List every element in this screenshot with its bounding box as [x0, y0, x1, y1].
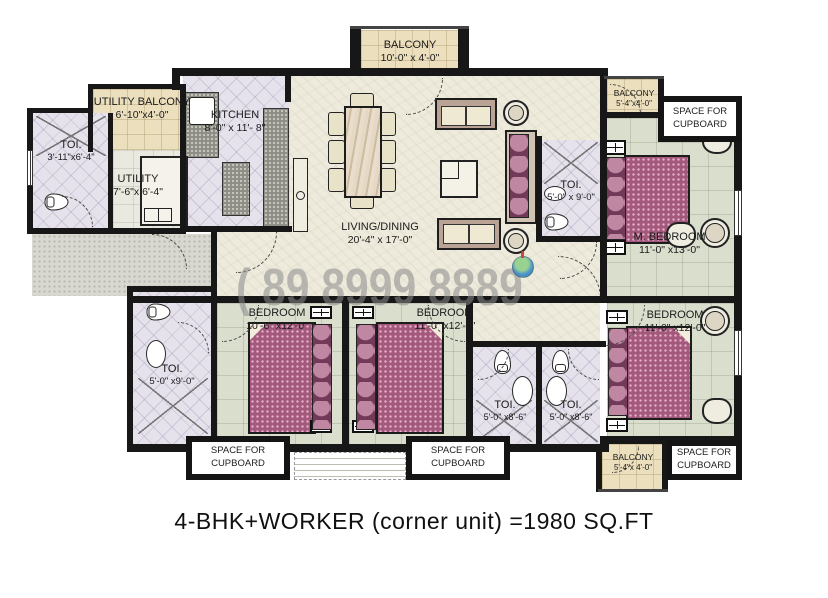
label-toi-left: TOI. 3'-11"x6'-4"	[33, 138, 109, 165]
room-name: BALCONY	[608, 88, 660, 99]
room-dims: 3'-11"x6'-4"	[33, 152, 109, 164]
room-name: TOI.	[135, 362, 209, 376]
room-dims: 11'-0" x13'-0"	[612, 244, 727, 258]
sofa	[435, 98, 497, 130]
wall	[127, 286, 133, 452]
wall	[211, 286, 217, 452]
window	[734, 330, 742, 376]
wall	[734, 140, 742, 440]
dining-chair	[328, 112, 345, 136]
balcony-rail	[350, 26, 469, 29]
floor-plan: SPACE FOR CUPBOARD SPACE FOR CUPBOARD SP…	[0, 0, 828, 598]
room-name: LIVING/DINING	[320, 220, 440, 234]
planter	[503, 100, 529, 126]
globe-watermark-icon	[512, 256, 534, 278]
sofa-cushion	[466, 106, 491, 126]
room-dims: 5'-0" x9'-0"	[135, 376, 209, 388]
cupboard-label: SPACE FOR CUPBOARD	[666, 106, 734, 132]
wall	[27, 108, 93, 113]
coffee-table	[440, 160, 478, 198]
room-name: TOI.	[33, 138, 109, 152]
room-name: BALCONY	[604, 452, 662, 463]
label-toi-bottom-1: TOI. 5'-0" x8'-6"	[474, 398, 536, 424]
wall	[88, 84, 186, 89]
room-dims: 10'-0" x 4'-0"	[355, 52, 465, 66]
balcony-rail	[604, 76, 664, 79]
side-table	[604, 140, 626, 155]
room-name: M. BEDROOM	[612, 230, 727, 244]
label-toi-bottom-2: TOI. 5'-0" x8'-6"	[542, 398, 600, 424]
room-dims: 8'-0" x 11'- 8"	[190, 122, 280, 136]
bed	[376, 322, 444, 434]
armchair	[702, 398, 732, 424]
room-dims: 5'-0" x 9'-0"	[540, 192, 602, 204]
dining-chair	[328, 168, 345, 192]
room-dims: 5'-4"x4'-0"	[608, 99, 660, 109]
label-utility-balcony: UTILITY BALCONY 6'-10"x4'-0"	[92, 96, 192, 122]
bed	[626, 326, 692, 420]
room-dims: 7'-6"x 6'-4"	[92, 186, 184, 200]
room-dims: 11'-0" x12'-0"	[620, 322, 730, 336]
room-dims: 5'-4"x 4'-0"	[604, 463, 662, 473]
wall	[285, 76, 291, 102]
room-name: BALCONY	[355, 38, 465, 52]
dining-table	[344, 106, 382, 198]
bed-pillows	[606, 157, 626, 240]
room-dims: 6'-10"x4'-0"	[92, 109, 192, 123]
label-toi-master: TOI. 5'-0" x 9'-0"	[540, 178, 602, 205]
cupboard-label: SPACE FOR CUPBOARD	[194, 445, 282, 471]
window	[734, 190, 742, 236]
room-dims: 11'-0" x12'-0"	[390, 320, 500, 334]
dining-chair	[328, 140, 345, 164]
cupboard-space: SPACE FOR CUPBOARD	[666, 440, 742, 480]
cupboard-space: SPACE FOR CUPBOARD	[186, 436, 290, 480]
wall	[127, 286, 217, 292]
label-bedroom-right: BEDROOM 11'-0" x12'-0"	[620, 308, 730, 336]
watermark-phone: ( 89 8999 8889	[236, 258, 515, 318]
cupboard-label: SPACE FOR CUPBOARD	[674, 447, 734, 473]
balcony-rail	[598, 489, 668, 492]
cupboard-space: SPACE FOR CUPBOARD	[406, 436, 510, 480]
room-name: UTILITY BALCONY	[92, 96, 192, 109]
balcony-post	[596, 444, 602, 492]
room-name: BEDROOM	[620, 308, 730, 322]
wall	[180, 226, 292, 232]
side-table	[606, 418, 628, 432]
wall	[88, 228, 186, 234]
cupboard-label: SPACE FOR CUPBOARD	[414, 445, 502, 471]
bench-cushions	[509, 134, 529, 218]
coffee-table-detail	[442, 162, 459, 179]
room-name: TOI.	[474, 398, 536, 412]
wall	[108, 113, 113, 229]
label-balcony-top-right: BALCONY 5'-4"x4'-0"	[608, 88, 660, 109]
sofa-cushion	[441, 106, 466, 126]
label-kitchen: KITCHEN 8'-0" x 11'- 8"	[190, 108, 280, 136]
room-name: TOI.	[542, 398, 600, 412]
wall	[342, 303, 349, 450]
room-name: TOI.	[540, 178, 602, 192]
label-utility: UTILITY 7'-6"x 6'-4"	[92, 172, 184, 200]
room-dims: 10'-6" x12'-0"	[222, 320, 332, 334]
kitchen-counter	[222, 162, 250, 216]
bed-pillows	[356, 324, 376, 430]
toilet-icon	[552, 350, 569, 374]
sofa-cushion	[443, 224, 469, 244]
cupboard-space: SPACE FOR CUPBOARD	[658, 96, 742, 142]
room-dims: 5'-0" x8'-6"	[474, 412, 536, 424]
room-dims: 5'-0" x8'-6"	[542, 412, 600, 424]
ledge	[294, 452, 406, 480]
room-name: UTILITY	[92, 172, 184, 186]
label-balcony-top: BALCONY 10'-0" x 4'-0"	[355, 38, 465, 66]
wall	[604, 112, 660, 118]
label-toi-bottom-left: TOI. 5'-0" x9'-0"	[135, 362, 209, 389]
sofa	[437, 218, 501, 250]
planter	[503, 228, 529, 254]
wall	[606, 296, 742, 303]
tv-unit	[293, 158, 308, 232]
bed-pillows	[312, 324, 332, 430]
wall	[536, 236, 606, 242]
bed	[248, 322, 316, 434]
wall	[466, 341, 606, 347]
plan-title: 4-BHK+WORKER (corner unit) =1980 SQ.FT	[0, 508, 828, 535]
room-dims: 20'-4" x 17'-0"	[320, 234, 440, 248]
label-living: LIVING/DINING 20'-4" x 17'-0"	[320, 220, 440, 248]
seat-bench	[505, 130, 537, 224]
label-m-bedroom: M. BEDROOM 11'-0" x13'-0"	[612, 230, 727, 258]
label-balcony-bottom-right: BALCONY 5'-4"x 4'-0"	[604, 452, 662, 473]
room-name: KITCHEN	[190, 108, 280, 122]
wall	[172, 68, 608, 76]
sofa-cushion	[469, 224, 495, 244]
